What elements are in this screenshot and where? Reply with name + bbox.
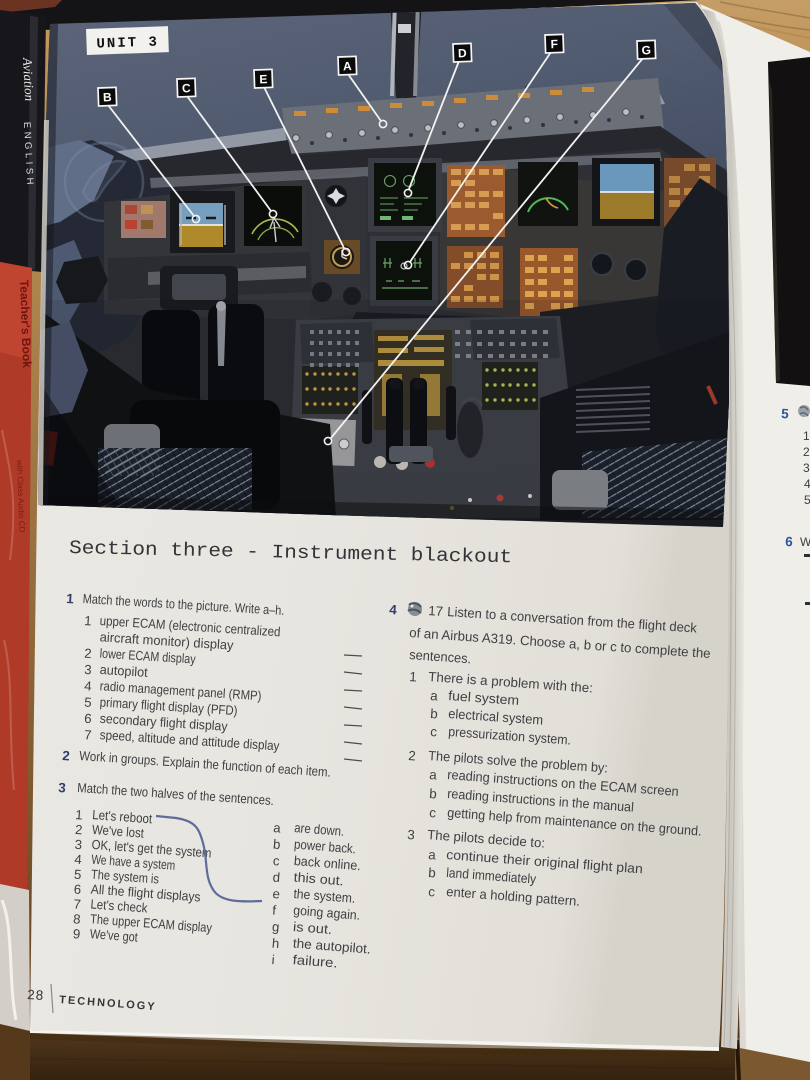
svg-text:D: D: [458, 46, 467, 60]
svg-text:3: 3: [84, 662, 92, 677]
svg-text:6: 6: [73, 882, 81, 897]
svg-text:1: 1: [75, 807, 83, 822]
svg-text:b: b: [428, 865, 437, 881]
svg-text:1: 1: [409, 669, 417, 684]
svg-text:2: 2: [84, 646, 92, 661]
svg-text:is out.: is out.: [293, 919, 333, 937]
svg-text:5: 5: [804, 493, 810, 507]
svg-text:2: 2: [62, 748, 70, 763]
svg-text:7: 7: [73, 896, 81, 911]
svg-text:C: C: [182, 81, 191, 95]
svg-text:5: 5: [781, 406, 790, 421]
svg-text:B: B: [103, 90, 112, 104]
svg-text:28: 28: [27, 987, 45, 1003]
svg-text:7: 7: [84, 727, 92, 742]
svg-text:3: 3: [803, 461, 810, 475]
svg-text:8: 8: [73, 911, 81, 926]
svg-text:UNIT 3: UNIT 3: [96, 34, 159, 52]
svg-text:d: d: [272, 870, 280, 886]
svg-text:W: W: [800, 535, 810, 549]
svg-text:autopilot: autopilot: [99, 662, 148, 680]
svg-text:c: c: [430, 724, 438, 739]
svg-text:4: 4: [389, 602, 398, 617]
svg-text:1: 1: [66, 591, 75, 606]
svg-text:6: 6: [785, 534, 794, 549]
svg-text:2: 2: [408, 748, 416, 763]
svg-text:g: g: [272, 919, 280, 935]
svg-text:5: 5: [74, 867, 82, 882]
svg-text:3: 3: [58, 780, 67, 795]
svg-text:b: b: [429, 786, 438, 802]
svg-text:4: 4: [74, 852, 82, 867]
svg-text:5: 5: [84, 695, 92, 710]
svg-text:4: 4: [804, 477, 810, 491]
svg-text:17: 17: [428, 603, 444, 619]
svg-text:h: h: [271, 936, 279, 952]
svg-text:2: 2: [803, 445, 810, 459]
svg-text:b: b: [273, 837, 281, 853]
svg-text:b: b: [430, 706, 438, 721]
svg-text:1: 1: [803, 429, 810, 443]
svg-text:2: 2: [74, 822, 82, 837]
svg-text:F: F: [550, 37, 558, 51]
svg-text:3: 3: [74, 837, 82, 852]
svg-text:4: 4: [84, 678, 92, 693]
svg-text:3: 3: [407, 827, 416, 843]
svg-text:6: 6: [84, 711, 92, 726]
svg-text:e: e: [272, 886, 280, 902]
svg-text:9: 9: [72, 926, 80, 941]
svg-text:A: A: [343, 59, 352, 73]
svg-text:G: G: [641, 43, 651, 57]
svg-text:E: E: [259, 72, 267, 86]
svg-text:1: 1: [84, 613, 92, 628]
svg-text:Aviation: Aviation: [20, 56, 37, 101]
